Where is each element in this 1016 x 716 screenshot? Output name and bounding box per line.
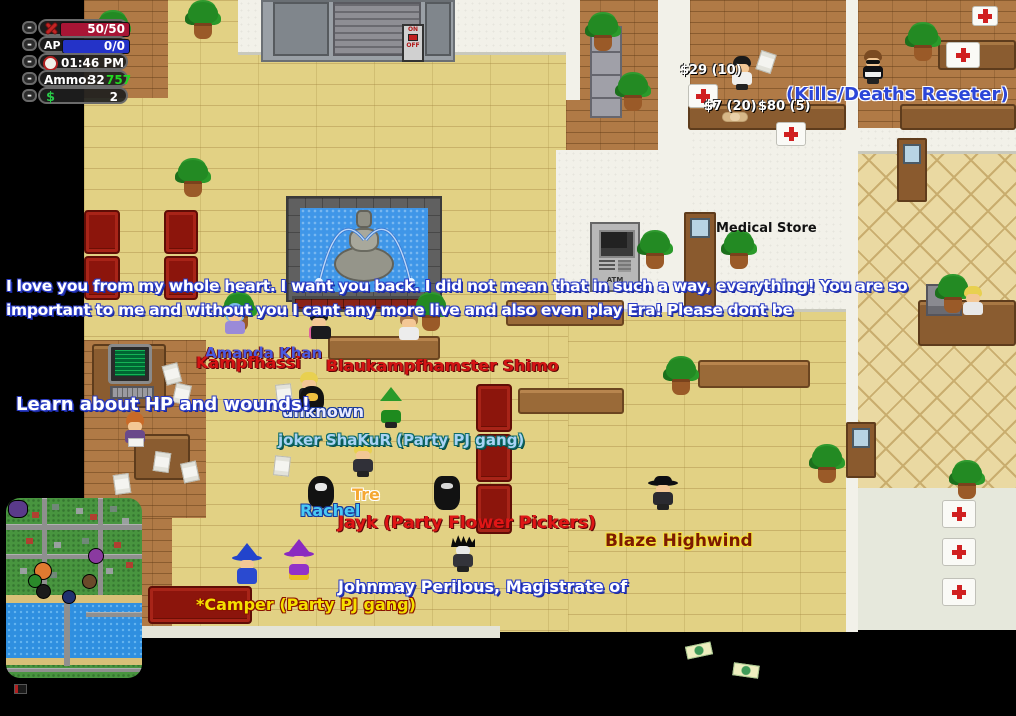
north-wall-sliver: [566, 0, 580, 100]
atm-vents: [599, 260, 615, 272]
player-name: Johnmay Perilous, Magistrate of: [338, 579, 627, 596]
office-counter: [900, 104, 1016, 130]
potted-plant: [638, 232, 672, 276]
hud-minimize-button[interactable]: -: [22, 55, 37, 68]
character-clerk-writing[interactable]: [122, 412, 148, 446]
time-value: 01:46 PM: [61, 56, 124, 70]
npc-title-label: (Kills/Deaths Reseter): [786, 86, 1009, 105]
medkit-on-table: [946, 42, 980, 68]
money-value: 2: [110, 90, 118, 104]
hud-minimize-button[interactable]: -: [22, 38, 37, 51]
sofa[interactable]: [84, 210, 120, 254]
hud-money-row: $ 2: [38, 87, 128, 104]
office-door[interactable]: [897, 138, 927, 202]
character-kills-deaths-reseter[interactable]: [860, 50, 886, 84]
player-name: joker ShaKuR (Party PJ gang): [278, 433, 524, 449]
hud-minimize-button[interactable]: -: [22, 21, 37, 34]
atm-screen: [599, 230, 635, 258]
paper: [153, 451, 172, 473]
hud-health-row: 50/50: [38, 19, 128, 36]
computer-screen: [115, 350, 145, 376]
minimap-road: [6, 668, 142, 672]
hud-ammo-row: Ammo: 32 757: [38, 70, 128, 87]
ap-bar: 0/0: [62, 39, 130, 54]
chat-line-2: important to me and without you I cant a…: [6, 302, 793, 318]
bench[interactable]: [518, 388, 624, 414]
wall-medkit: [942, 578, 976, 606]
switch-off-label: OFF: [406, 42, 419, 49]
potted-plant: [906, 24, 940, 68]
ammo-label: Ammo:: [44, 73, 91, 87]
paper: [113, 473, 132, 495]
southeast-wall: [858, 488, 1016, 630]
shop-medkit-large[interactable]: [776, 122, 806, 146]
price-label: $80 (5): [758, 100, 811, 114]
minimap-road: [6, 554, 142, 559]
wall-medkit: [942, 500, 976, 528]
player-name: Kampfhassi: [196, 355, 301, 372]
plaza-baseboard: [84, 626, 500, 638]
character-blue-wizard[interactable]: [234, 550, 260, 584]
character-johnmay[interactable]: [450, 538, 476, 572]
minimap-player-marker: [36, 584, 51, 599]
ammo-extra-value: 757: [106, 73, 131, 87]
potted-plant: [586, 14, 620, 58]
computer-monitor[interactable]: [108, 344, 152, 384]
minimap-player-marker: [82, 574, 97, 589]
ammo-value: 32: [88, 73, 105, 87]
elevator-right-panel: [425, 2, 451, 56]
potted-plant: [176, 160, 210, 204]
minimap-road: [6, 524, 142, 530]
door-window: [903, 144, 921, 164]
character-blaze-highwind[interactable]: [650, 476, 676, 510]
chat-line-1: I love you from my whole heart. I want y…: [6, 278, 907, 294]
hud-ap-row: AP 0/0: [38, 36, 128, 53]
price-label: $29 (10): [680, 64, 742, 78]
potted-plant: [664, 358, 698, 402]
minimap-legend-icon: [14, 684, 27, 694]
door-window: [690, 218, 710, 238]
switch-button[interactable]: [408, 34, 418, 41]
power-switch[interactable]: ON OFF: [402, 24, 424, 62]
character-purple-wizard[interactable]: [286, 546, 312, 580]
medical-store-north-wall: [858, 128, 1016, 154]
potted-plant: [186, 2, 220, 46]
minimap-player-marker: [62, 590, 76, 604]
medkit-sign: [972, 6, 998, 26]
potted-plant: [616, 74, 650, 118]
player-name: Blaze Highwind: [605, 533, 753, 551]
price-label: $7 (20): [704, 100, 757, 114]
sofa[interactable]: [164, 210, 198, 254]
door-window: [852, 428, 870, 448]
hud-minimize-button[interactable]: -: [22, 89, 37, 102]
minimap[interactable]: [6, 498, 142, 678]
player-name: Blaukampfhamster Shimo: [326, 358, 559, 375]
minimap-bridge: [64, 594, 70, 666]
sofa[interactable]: [476, 384, 512, 432]
character-black-cat[interactable]: [434, 476, 460, 510]
hud: - 50/50 - AP 0/0 - 01:46 PM - Ammo: 32 7…: [0, 0, 140, 105]
dropped-money[interactable]: [732, 662, 760, 678]
character-green-elf[interactable]: [378, 394, 404, 428]
minimap-beach: [6, 658, 142, 665]
npc-hint-text: Learn about HP and wounds!: [16, 396, 310, 415]
paper: [273, 455, 291, 477]
minimap-pier: [86, 612, 142, 617]
minimap-corner-avatar: [8, 500, 28, 518]
player-name: *Camper (Party PJ gang): [196, 597, 416, 614]
potted-plant: [722, 232, 756, 276]
character-store-clerk[interactable]: [960, 286, 986, 320]
medical-store-sign: Medical Store: [716, 222, 817, 236]
bench[interactable]: [698, 360, 810, 388]
hud-minimize-button[interactable]: -: [22, 72, 37, 85]
money-icon: $: [46, 90, 55, 105]
elevator-left-panel: [273, 2, 329, 56]
switch-on-label: ON: [408, 26, 418, 33]
game-screen: ON OFF ATM: [0, 0, 1016, 716]
potted-plant: [810, 446, 844, 490]
player-name: Jayk (Party Flower Pickers): [338, 515, 596, 533]
ap-label: AP: [44, 39, 61, 52]
clock-icon: [43, 56, 58, 71]
hud-time-row: 01:46 PM: [38, 53, 128, 70]
atm-keypad: [618, 260, 631, 272]
minimap-player-marker: [88, 548, 104, 564]
health-bar: 50/50: [60, 22, 130, 37]
dropped-money[interactable]: [685, 641, 713, 659]
east-side-door[interactable]: [846, 422, 876, 478]
wall-medkit: [942, 538, 976, 566]
